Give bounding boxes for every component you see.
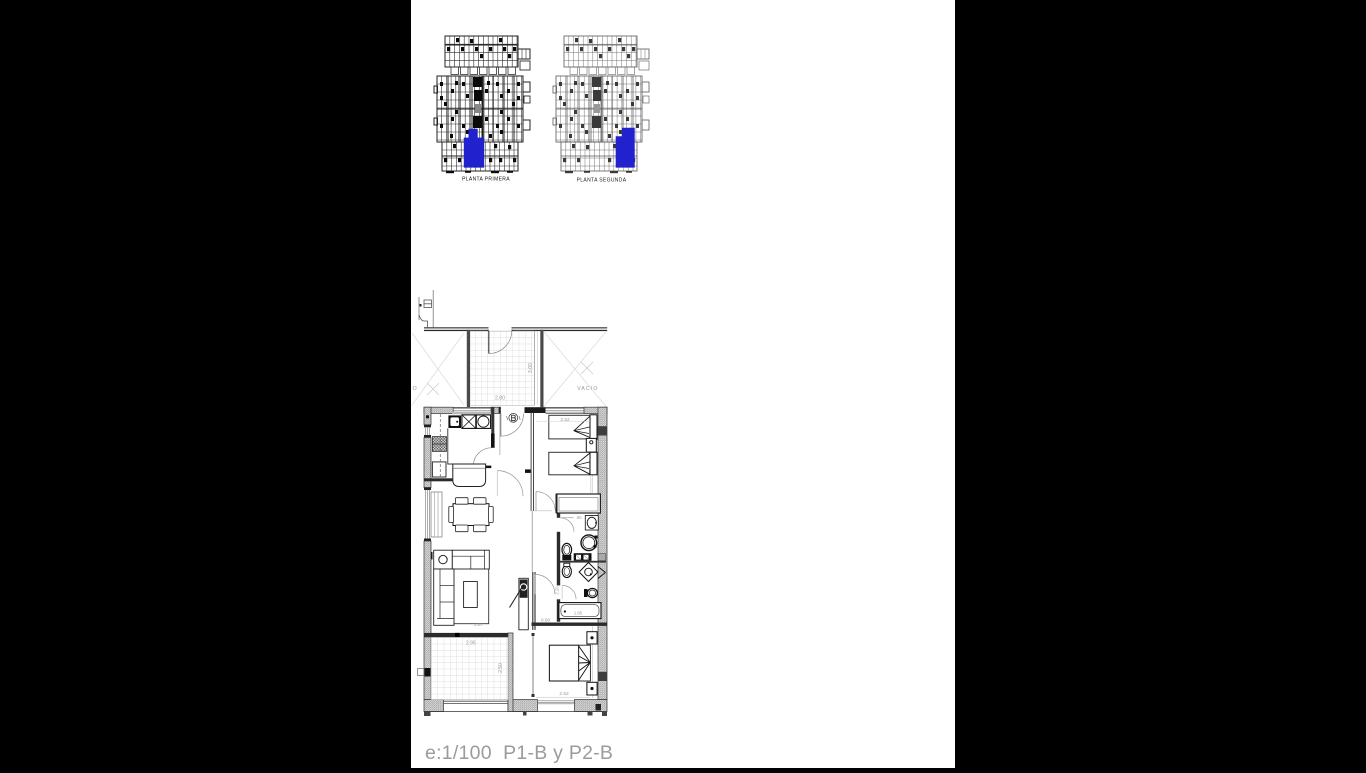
svg-text:2.20: 2.20	[555, 586, 560, 595]
svg-text:VACIO: VACIO	[411, 386, 418, 392]
svg-text:3.00: 3.00	[528, 363, 534, 373]
svg-text:2.52: 2.52	[560, 417, 570, 423]
svg-text:.60: .60	[576, 515, 582, 520]
svg-text:3.87: 3.87	[474, 622, 484, 628]
svg-text:PLANTA SEGUNDA: PLANTA SEGUNDA	[577, 177, 627, 183]
svg-text:2.80: 2.80	[495, 395, 505, 401]
svg-text:2.95: 2.95	[466, 641, 476, 647]
svg-text:VACIO: VACIO	[577, 386, 598, 392]
svg-text:2.52: 2.52	[559, 691, 569, 697]
svg-text:0.80: 0.80	[541, 617, 551, 623]
svg-text:1.80: 1.80	[574, 610, 583, 615]
svg-text:PLANTA PRIMERA: PLANTA PRIMERA	[462, 176, 510, 182]
svg-text:e:1/100 P1-B y P2-B: e:1/100 P1-B y P2-B	[425, 742, 613, 764]
svg-text:2.50: 2.50	[498, 663, 504, 673]
